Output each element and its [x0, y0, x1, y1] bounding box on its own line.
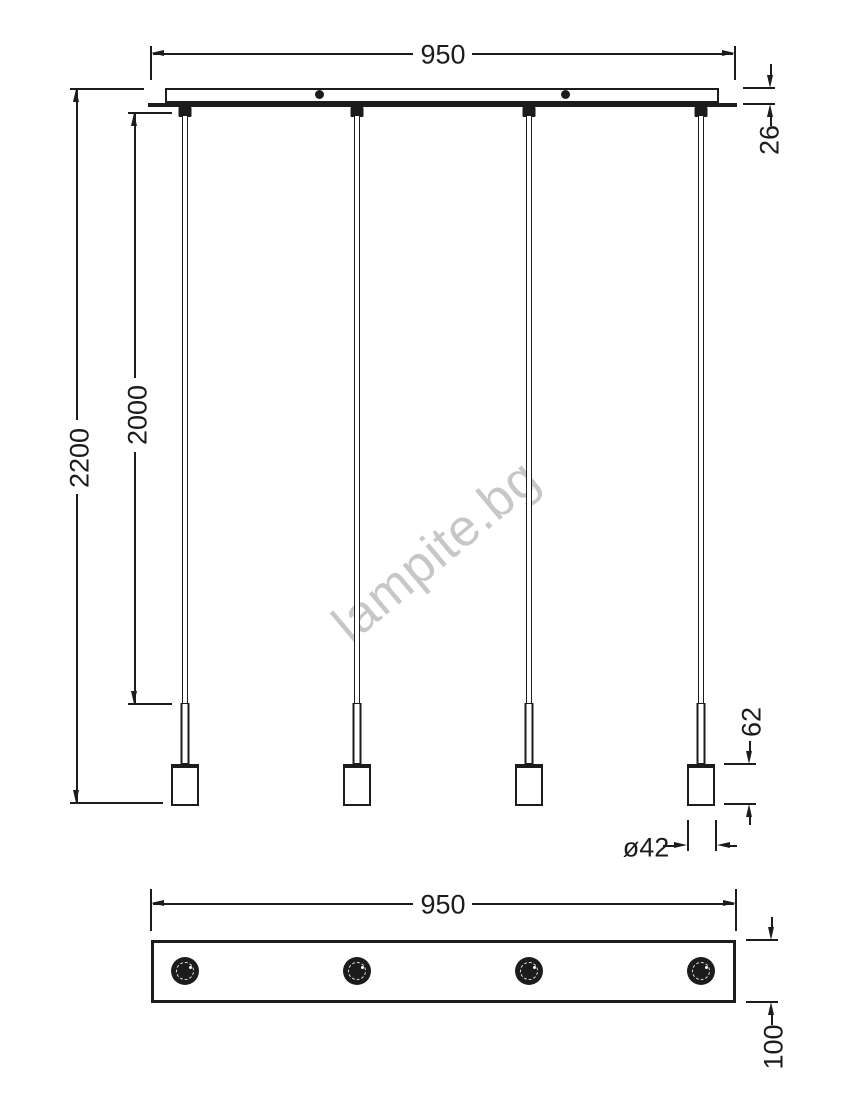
dim-suspension-length-label: 2000 — [125, 385, 152, 445]
lamp-socket-bottom-3 — [515, 957, 543, 985]
dim-overall-ext-bottom — [70, 802, 163, 804]
canopy-side-view — [165, 88, 719, 103]
dim-top-width-line-left — [153, 53, 413, 55]
socket-highlight — [361, 966, 364, 969]
canopy-screw-dot-left — [315, 90, 324, 99]
dim-top-width-label: 950 — [420, 42, 465, 69]
pendant-4 — [687, 107, 715, 807]
dim-overall-line-lower — [76, 494, 78, 803]
dim-socket-diameter-label: ø42 — [623, 835, 670, 862]
suspension-cord — [354, 116, 360, 704]
arrowhead-down-icon — [73, 790, 79, 803]
suspension-cord — [526, 116, 532, 704]
socket-ring — [692, 962, 710, 980]
dim-socket-height-label: 62 — [739, 707, 766, 737]
dim-canopy-depth-label: 100 — [761, 1024, 788, 1069]
arrowhead-up-icon — [768, 1002, 774, 1015]
pendant-1 — [171, 107, 199, 807]
lamp-socket-cup — [171, 764, 199, 806]
lamp-socket-bottom-1 — [171, 957, 199, 985]
arrowhead-left-icon — [151, 900, 164, 906]
dim-bottom-width-line-left — [153, 903, 413, 905]
socket-ring — [520, 962, 538, 980]
socket-highlight — [705, 966, 708, 969]
socket-stem — [181, 703, 190, 765]
arrowhead-left-icon — [151, 50, 164, 56]
pendant-2 — [343, 107, 371, 807]
dim-42-line-right — [728, 845, 737, 847]
dim-bottom-width-ext-left — [150, 889, 152, 931]
suspension-cord — [182, 116, 188, 704]
socket-highlight — [189, 966, 192, 969]
suspension-cord — [698, 116, 704, 704]
socket-stem — [353, 703, 362, 765]
socket-highlight — [533, 966, 536, 969]
canopy-bottom-view — [151, 940, 736, 1003]
arrowhead-down-icon — [768, 927, 774, 940]
arrowhead-down-icon — [746, 751, 752, 764]
arrowhead-up-icon — [767, 104, 773, 117]
pendant-3 — [515, 107, 543, 807]
arrowhead-right-icon — [723, 900, 736, 906]
dim-top-width-line-right — [472, 53, 733, 55]
dim-susp-line-lower — [134, 452, 136, 704]
dim-overall-height-label: 2200 — [67, 428, 94, 488]
dim-canopy-thickness-label: 26 — [757, 125, 784, 155]
technical-drawing-canvas: lampite.bg 950 — [0, 0, 865, 1106]
dim-overall-ext-top — [70, 88, 144, 90]
lamp-socket-cup — [687, 764, 715, 806]
dim-susp-line-upper — [134, 113, 136, 378]
arrowhead-right-icon — [722, 50, 735, 56]
arrowhead-up-icon — [73, 89, 79, 102]
dim-bottom-width-label: 950 — [420, 892, 465, 919]
arrowhead-up-icon — [131, 113, 137, 126]
dim-62-stub-bottom — [749, 816, 751, 825]
lamp-socket-bottom-4 — [687, 957, 715, 985]
lamp-socket-cup — [343, 764, 371, 806]
socket-stem — [697, 703, 706, 765]
canopy-flange — [148, 103, 737, 108]
socket-ring — [348, 962, 366, 980]
socket-ring — [176, 962, 194, 980]
arrowhead-down-icon — [131, 691, 137, 704]
dim-42-ext-left — [687, 820, 689, 851]
lamp-socket-cup — [515, 764, 543, 806]
canopy-screw-dot-right — [561, 90, 570, 99]
arrowhead-down-icon — [767, 75, 773, 88]
dim-bottom-width-line-right — [472, 903, 734, 905]
dim-overall-line-upper — [76, 89, 78, 420]
arrowhead-right-icon — [674, 842, 687, 848]
lamp-socket-bottom-2 — [343, 957, 371, 985]
socket-stem — [525, 703, 534, 765]
dim-bottom-width-ext-right — [735, 889, 737, 931]
